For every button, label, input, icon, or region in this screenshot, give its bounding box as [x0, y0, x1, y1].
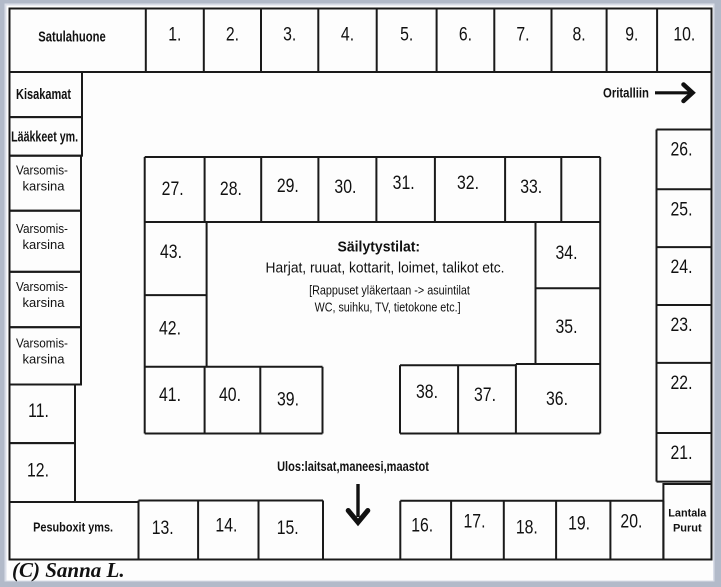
svg-text:Lantala: Lantala: [668, 507, 707, 519]
svg-text:karsina: karsina: [23, 179, 66, 194]
svg-text:23.: 23.: [671, 313, 693, 335]
svg-text:36.: 36.: [546, 387, 568, 409]
svg-text:WC, suihku, TV, tietokone etc.: WC, suihku, TV, tietokone etc.]: [315, 300, 461, 315]
svg-text:12.: 12.: [27, 459, 49, 481]
svg-text:31.: 31.: [393, 171, 415, 193]
svg-text:Harjat, ruuat, kottarit, loime: Harjat, ruuat, kottarit, loimet, talikot…: [266, 260, 505, 277]
svg-text:9.: 9.: [625, 23, 638, 45]
svg-text:1.: 1.: [168, 23, 181, 45]
svg-text:karsina: karsina: [23, 295, 66, 310]
svg-text:22.: 22.: [671, 371, 693, 393]
svg-text:43.: 43.: [160, 240, 182, 262]
svg-text:14.: 14.: [215, 514, 237, 536]
svg-text:24.: 24.: [671, 256, 693, 278]
svg-text:37.: 37.: [474, 383, 496, 405]
svg-text:27.: 27.: [162, 177, 184, 199]
svg-text:(C) Sanna L.: (C) Sanna L.: [12, 558, 125, 582]
svg-text:30.: 30.: [334, 175, 356, 197]
svg-text:25.: 25.: [671, 198, 693, 220]
svg-text:2.: 2.: [226, 23, 239, 45]
svg-text:29.: 29.: [277, 174, 299, 196]
svg-text:Satulahuone: Satulahuone: [38, 28, 105, 45]
svg-text:16.: 16.: [411, 514, 433, 536]
svg-text:Ulos:laitsat,maneesi,maastot: Ulos:laitsat,maneesi,maastot: [277, 459, 429, 474]
svg-text:karsina: karsina: [23, 237, 66, 252]
svg-text:8.: 8.: [572, 23, 585, 45]
svg-text:15.: 15.: [277, 516, 299, 538]
svg-text:10.: 10.: [673, 23, 695, 45]
svg-text:Purut: Purut: [673, 522, 702, 534]
svg-text:21.: 21.: [671, 441, 693, 463]
svg-text:Varsomis-: Varsomis-: [16, 163, 68, 178]
svg-text:3.: 3.: [283, 23, 296, 45]
svg-text:28.: 28.: [220, 177, 242, 199]
svg-text:34.: 34.: [556, 241, 578, 263]
svg-text:38.: 38.: [416, 380, 438, 402]
svg-text:5.: 5.: [400, 23, 413, 45]
svg-text:26.: 26.: [671, 138, 693, 160]
svg-text:41.: 41.: [159, 383, 181, 405]
svg-text:Varsomis-: Varsomis-: [16, 221, 68, 236]
svg-text:Varsomis-: Varsomis-: [16, 279, 68, 294]
svg-text:7.: 7.: [516, 23, 529, 45]
svg-text:39.: 39.: [277, 388, 299, 410]
svg-text:[Rappuset yläkertaan -> asuint: [Rappuset yläkertaan -> asuintilat: [309, 282, 471, 297]
svg-text:Säilytystilat:: Säilytystilat:: [338, 239, 421, 255]
svg-text:32.: 32.: [457, 171, 479, 193]
svg-text:6.: 6.: [459, 23, 472, 45]
svg-text:42.: 42.: [159, 317, 181, 339]
svg-text:19.: 19.: [568, 512, 590, 534]
svg-text:18.: 18.: [516, 516, 538, 538]
svg-text:17.: 17.: [464, 510, 486, 532]
svg-text:20.: 20.: [620, 510, 642, 532]
svg-text:karsina: karsina: [23, 351, 66, 366]
svg-text:11.: 11.: [28, 399, 49, 421]
svg-text:35.: 35.: [556, 315, 578, 337]
svg-text:33.: 33.: [520, 175, 542, 197]
svg-text:Lääkkeet ym.: Lääkkeet ym.: [11, 128, 78, 145]
svg-text:Kisakamat: Kisakamat: [16, 85, 71, 102]
svg-text:Pesuboxit yms.: Pesuboxit yms.: [33, 519, 113, 534]
svg-text:13.: 13.: [152, 516, 174, 538]
svg-text:Varsomis-: Varsomis-: [16, 336, 68, 351]
svg-text:40.: 40.: [219, 383, 241, 405]
svg-text:4.: 4.: [341, 23, 354, 45]
svg-text:Oritalliin: Oritalliin: [603, 86, 649, 101]
